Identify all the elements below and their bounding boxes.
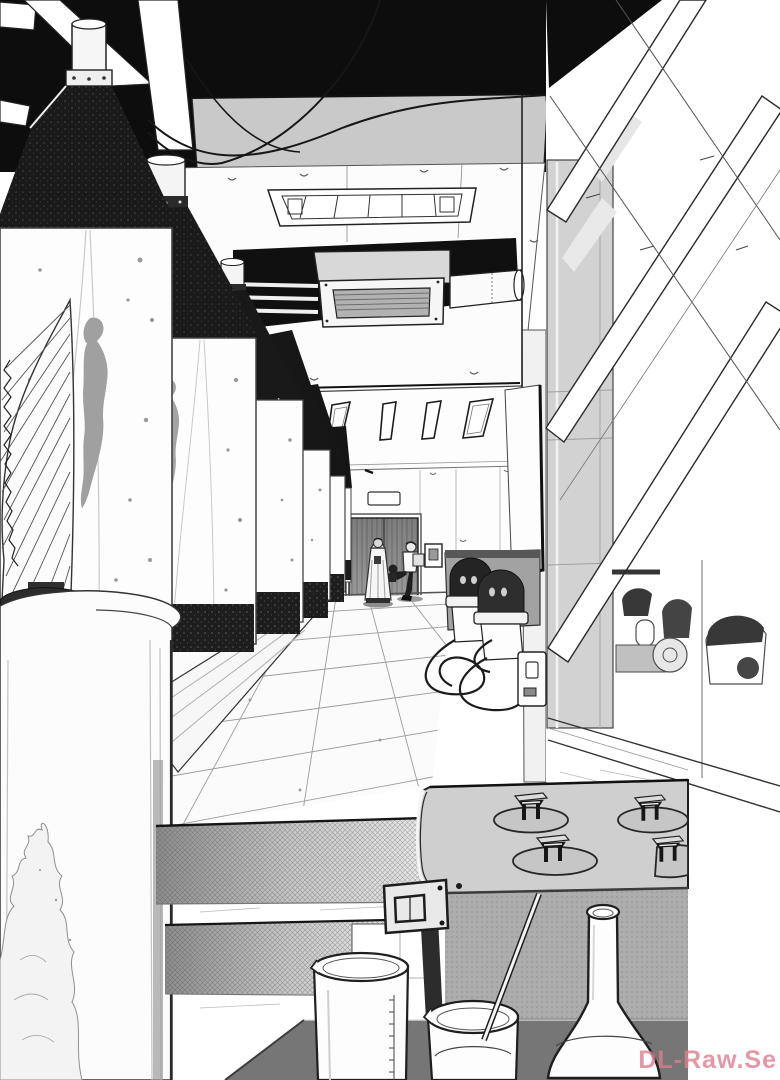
machine-bolt (456, 883, 462, 889)
wall-outlet (518, 652, 546, 706)
graduated-beaker (311, 953, 408, 1080)
far-right-machine (706, 616, 766, 684)
door-nameplate (368, 492, 400, 505)
door-keypad (425, 544, 442, 567)
watermark-text: DL-Raw.Se (638, 1046, 777, 1074)
machine-latch (384, 880, 448, 933)
lab-scene: DL-Raw.Se (0, 0, 780, 1080)
tank-1-nozzle (66, 19, 112, 86)
pedestal-shadow (153, 760, 163, 1080)
ceiling-light-fixture (268, 188, 476, 226)
ac-vent (314, 250, 450, 327)
window-truss-wall (546, 0, 780, 812)
manga-page: DL-Raw.Se (0, 0, 780, 1080)
